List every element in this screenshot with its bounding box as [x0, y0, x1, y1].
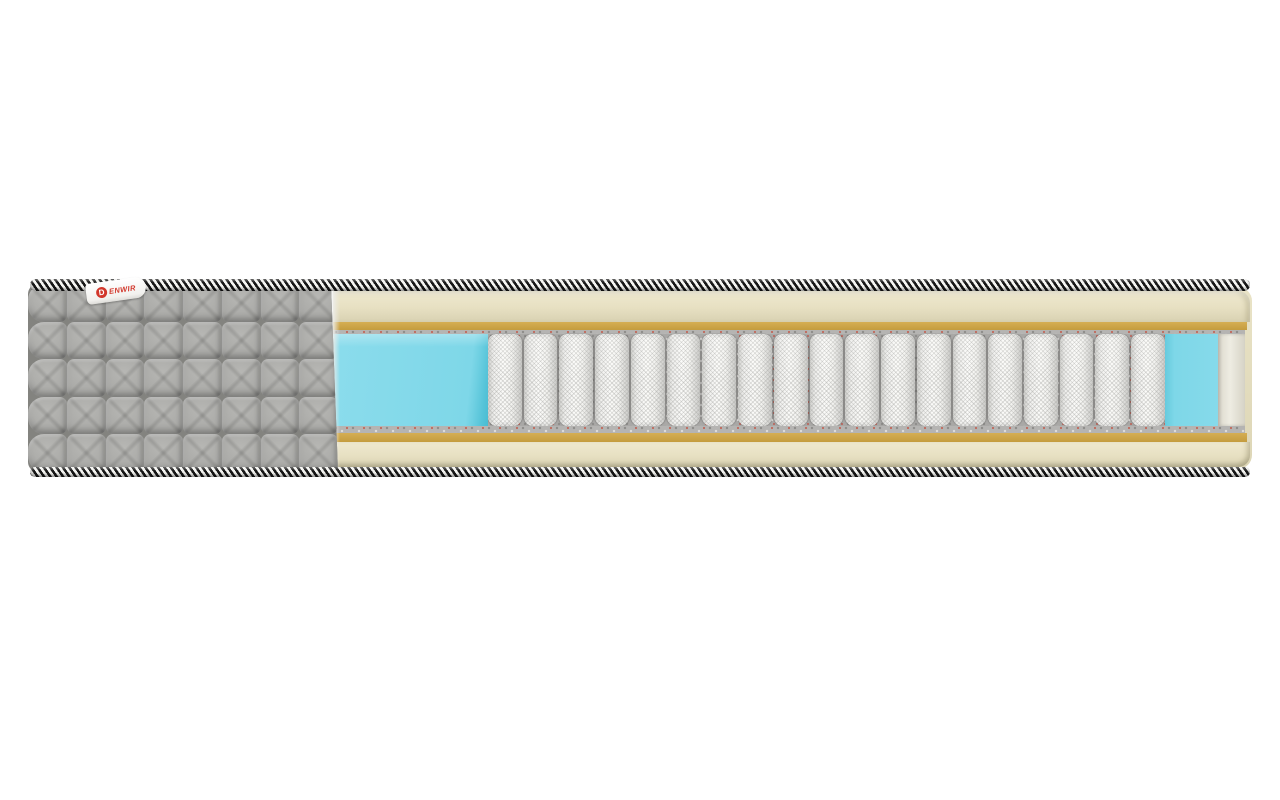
quilt-grid: [28, 284, 338, 472]
pocket-spring: [810, 334, 844, 426]
quilt-cell: [106, 322, 145, 360]
comfort-foam-top: [333, 291, 1250, 322]
inner-side-wall-right: [1218, 334, 1245, 426]
quilt-cell: [67, 359, 106, 397]
pocket-springs: [488, 334, 1165, 426]
pocket-spring: [631, 334, 665, 426]
quilt-cell: [28, 322, 67, 360]
quilt-cell: [28, 359, 67, 397]
quilt-cell: [183, 397, 222, 435]
firm-foam-strip-bottom: [333, 433, 1247, 442]
quilt-cell: [67, 322, 106, 360]
quilt-cell: [144, 359, 183, 397]
firm-foam-strip-top: [333, 322, 1247, 330]
pocket-spring: [845, 334, 879, 426]
quilt-cell: [222, 322, 261, 360]
mattress-cross-section: D ENWIR: [28, 279, 1252, 477]
pocket-spring: [953, 334, 987, 426]
pocket-spring: [738, 334, 772, 426]
spring-block: [333, 334, 1245, 426]
pocket-spring: [524, 334, 558, 426]
pocket-spring: [488, 334, 522, 426]
felt-pad-bottom: [333, 426, 1245, 433]
quilt-cell: [222, 397, 261, 435]
pocket-spring: [774, 334, 808, 426]
pocket-spring: [1060, 334, 1094, 426]
product-image-canvas: D ENWIR: [0, 0, 1280, 800]
pocket-spring: [595, 334, 629, 426]
quilt-cell: [299, 397, 338, 435]
quilt-cell: [261, 359, 300, 397]
quilt-cell: [183, 359, 222, 397]
quilt-cell: [106, 359, 145, 397]
pocket-spring: [1095, 334, 1129, 426]
edge-piping-bottom: [30, 467, 1250, 477]
comfort-foam-bottom: [333, 442, 1250, 467]
brand-logo-icon: D: [95, 286, 107, 298]
pocket-spring: [559, 334, 593, 426]
pocket-spring: [1024, 334, 1058, 426]
quilt-cell: [106, 397, 145, 435]
foam-block-left: [333, 334, 488, 426]
pocket-spring: [988, 334, 1022, 426]
quilt-cell: [222, 359, 261, 397]
pocket-spring: [702, 334, 736, 426]
quilt-cell: [299, 322, 338, 360]
brand-tag-label: ENWIR: [108, 283, 136, 296]
edge-piping-top: [30, 279, 1250, 291]
quilt-cell: [28, 397, 67, 435]
quilt-cell: [144, 397, 183, 435]
quilt-cell: [261, 322, 300, 360]
quilt-cell: [67, 397, 106, 435]
pocket-spring: [881, 334, 915, 426]
pocket-spring: [667, 334, 701, 426]
quilt-cell: [144, 322, 183, 360]
quilt-cell: [299, 359, 338, 397]
quilt-cell: [183, 322, 222, 360]
quilt-cell: [261, 397, 300, 435]
foam-block-right: [1165, 334, 1218, 426]
pocket-spring: [1131, 334, 1165, 426]
pocket-spring: [917, 334, 951, 426]
